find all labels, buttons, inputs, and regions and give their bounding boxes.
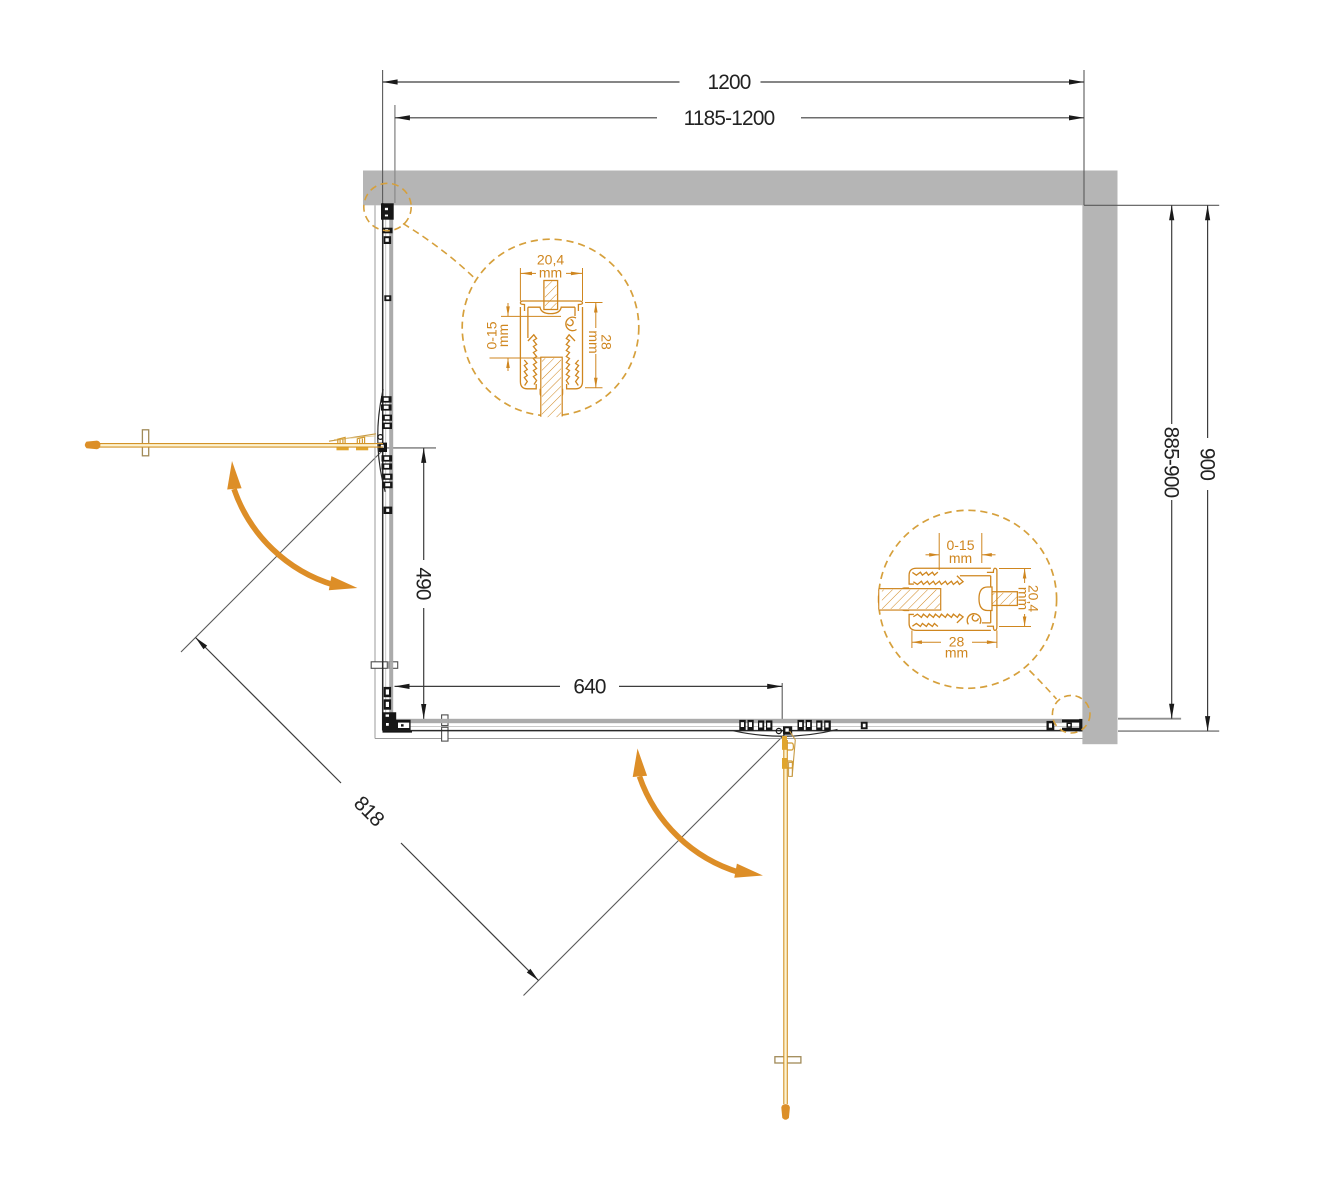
svg-text:mm: mm [586, 330, 602, 353]
svg-text:mm: mm [495, 324, 511, 347]
svg-text:640: 640 [573, 675, 606, 698]
svg-text:1200: 1200 [707, 71, 750, 94]
svg-text:mm: mm [1015, 587, 1031, 610]
svg-text:mm: mm [945, 645, 968, 661]
svg-text:885-900: 885-900 [1160, 427, 1183, 498]
svg-text:mm: mm [539, 265, 562, 281]
svg-text:900: 900 [1196, 448, 1219, 481]
svg-text:mm: mm [949, 550, 972, 566]
svg-text:490: 490 [412, 567, 435, 600]
svg-text:1185-1200: 1185-1200 [684, 107, 775, 130]
